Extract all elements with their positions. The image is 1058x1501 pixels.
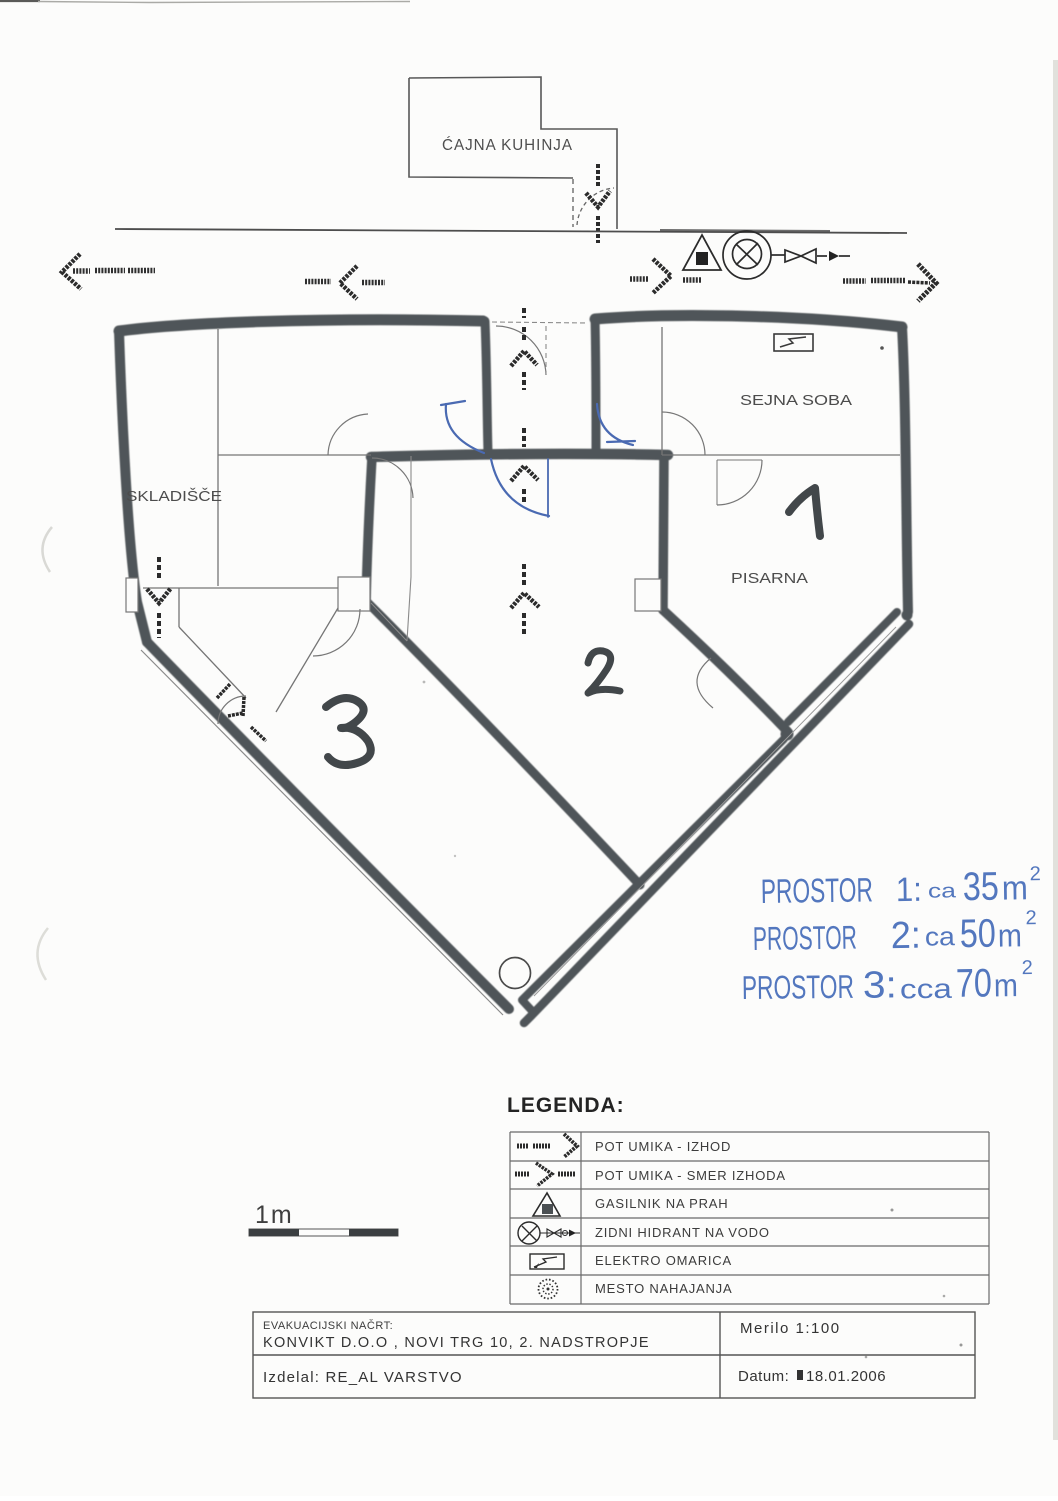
svg-text:SEJNA SOBA: SEJNA SOBA — [740, 393, 852, 409]
svg-text:ĆAJNA KUHINJA: ĆAJNA KUHINJA — [442, 137, 573, 154]
svg-text:PISARNA: PISARNA — [731, 571, 808, 587]
svg-text:Merilo 1:100: Merilo 1:100 — [740, 1320, 841, 1337]
svg-text:ca: ca — [925, 921, 956, 951]
svg-text:3:: 3: — [863, 964, 897, 1006]
svg-text:1m: 1m — [255, 1201, 294, 1229]
svg-text:Datum:: Datum: — [738, 1368, 789, 1385]
svg-text:1:: 1: — [896, 871, 923, 909]
svg-text:POT UMIKA - IZHOD: POT UMIKA - IZHOD — [595, 1139, 731, 1154]
svg-text:cca: cca — [900, 974, 954, 1005]
svg-text:ELEKTRO OMARICA: ELEKTRO OMARICA — [595, 1253, 732, 1268]
svg-text:2: 2 — [1022, 957, 1033, 979]
svg-text:EVAKUACIJSKI NAČRT:: EVAKUACIJSKI NAČRT: — [263, 1319, 393, 1332]
svg-text:MESTO NAHAJANJA: MESTO NAHAJANJA — [595, 1281, 732, 1296]
svg-text:35: 35 — [962, 865, 999, 909]
svg-text:2: 2 — [1029, 863, 1040, 885]
svg-text:LEGENDA:: LEGENDA: — [507, 1094, 625, 1117]
svg-text:KONVIKT D.O.O , NOVI TRG 10, 2: KONVIKT D.O.O , NOVI TRG 10, 2. NADSTROP… — [263, 1335, 650, 1351]
svg-text:POT UMIKA - SMER IZHODA: POT UMIKA - SMER IZHODA — [595, 1168, 786, 1183]
svg-text:GASILNIK NA PRAH: GASILNIK NA PRAH — [595, 1196, 728, 1211]
svg-text:SKLADIŠČE: SKLADIŠČE — [126, 488, 222, 505]
svg-text:18.01.2006: 18.01.2006 — [806, 1368, 886, 1385]
svg-text:PROSTOR: PROSTOR — [753, 919, 858, 957]
svg-text:ZIDNI HIDRANT NA VODO: ZIDNI HIDRANT NA VODO — [595, 1225, 770, 1240]
svg-text:70: 70 — [956, 961, 992, 1005]
svg-text:m: m — [994, 967, 1018, 1003]
svg-text:50: 50 — [959, 912, 996, 956]
svg-text:2: 2 — [1025, 907, 1036, 929]
svg-text:Izdelal: RE_AL VARSTVO: Izdelal: RE_AL VARSTVO — [263, 1369, 463, 1386]
svg-text:2:: 2: — [891, 915, 922, 957]
svg-text:m: m — [998, 917, 1023, 953]
svg-text:PROSTOR: PROSTOR — [742, 968, 854, 1006]
svg-text:m: m — [1002, 869, 1029, 907]
svg-text:PROSTOR: PROSTOR — [761, 871, 874, 911]
svg-text:ca: ca — [928, 880, 957, 902]
